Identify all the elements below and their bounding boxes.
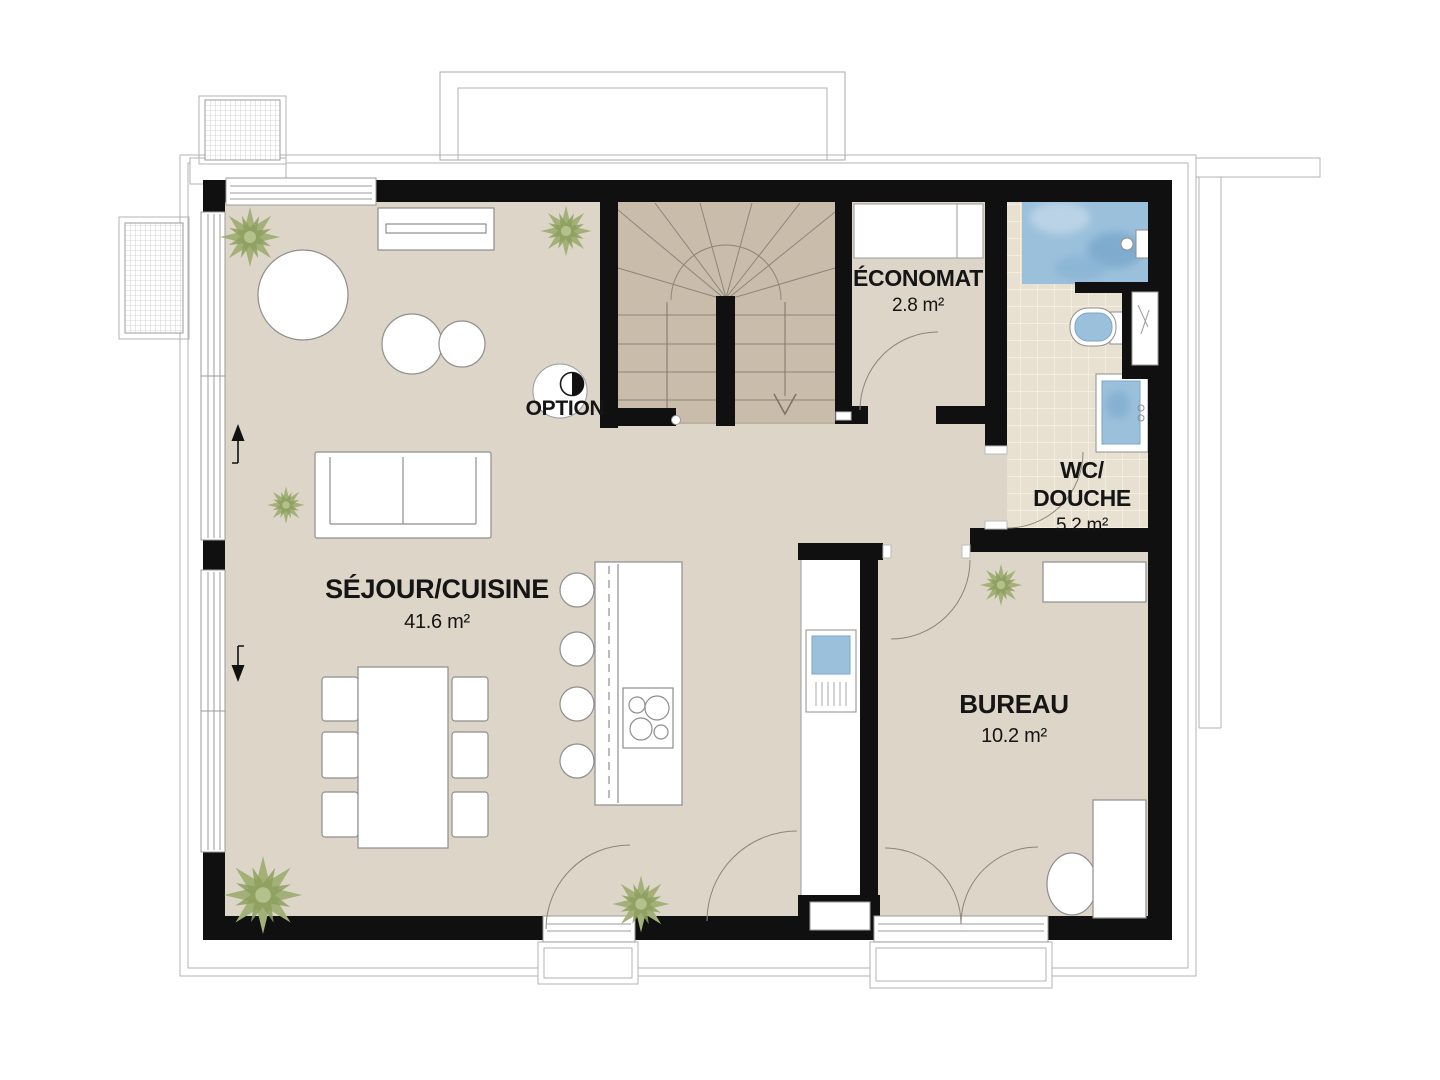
sideboard xyxy=(378,208,494,250)
sofa xyxy=(315,452,491,538)
shaft-bottom-box xyxy=(810,902,870,930)
room-area: 41.6 m² xyxy=(287,611,587,634)
plant-icon xyxy=(612,875,669,932)
wall-bottom xyxy=(203,916,547,940)
room-area: 2.8 m² xyxy=(818,295,1018,317)
bath-niche xyxy=(1132,292,1158,365)
toilet xyxy=(1070,308,1125,346)
plant-icon xyxy=(267,486,304,523)
room-area: 10.2 m² xyxy=(914,725,1114,748)
wall-hall-office xyxy=(798,543,883,560)
office-chair xyxy=(1047,853,1097,915)
stair-spine-wall xyxy=(716,296,735,426)
grille-top-icon xyxy=(205,100,280,160)
plant-icon xyxy=(220,207,280,267)
bar-stool xyxy=(560,632,594,666)
room-area: 5.2 m² xyxy=(1007,515,1157,537)
wall-storage-bath xyxy=(985,202,1007,454)
stair-walkline-start xyxy=(672,416,681,425)
option-label: OPTION xyxy=(505,397,625,421)
room-label-office: BUREAU 10.2 m² xyxy=(914,690,1114,748)
dining-table xyxy=(358,667,448,848)
pouf-small xyxy=(439,321,485,367)
plant-icon xyxy=(540,205,591,256)
wall-stairs-left xyxy=(600,202,618,428)
shaft-floor xyxy=(801,560,860,895)
office-desk xyxy=(1093,800,1146,918)
room-label-bathroom: WC/ DOUCHE 5.2 m² xyxy=(1007,457,1157,537)
floorplan-canvas: SÉJOUR/CUISINE 41.6 m² ÉCONOMAT 2.8 m² W… xyxy=(0,0,1440,1080)
window-top xyxy=(226,178,376,205)
cooktop-icon xyxy=(623,688,673,748)
room-name: ÉCONOMAT xyxy=(818,265,1018,291)
wall-shaft-right xyxy=(860,560,878,918)
storage-room xyxy=(854,204,983,258)
balcony-outline xyxy=(440,72,845,160)
round-table xyxy=(258,250,348,340)
room-label-living: SÉJOUR/CUISINE 41.6 m² xyxy=(287,574,587,634)
bar-stool xyxy=(560,744,594,778)
office-shelf xyxy=(1043,562,1146,602)
room-name: BUREAU xyxy=(914,690,1114,720)
bar-stool xyxy=(560,687,594,721)
plant-icon xyxy=(224,856,302,934)
kitchen-island xyxy=(595,562,682,805)
room-name: WC/ xyxy=(1007,457,1157,485)
shower-head-icon xyxy=(1121,238,1133,250)
pouf xyxy=(382,314,442,374)
bathroom-sink xyxy=(1096,374,1148,452)
dining-table-set xyxy=(322,667,488,848)
grille-left-icon xyxy=(125,223,183,333)
wall-shower-partition xyxy=(1075,282,1148,293)
room-label-storage: ÉCONOMAT 2.8 m² xyxy=(818,265,1018,317)
floorplan-svg xyxy=(0,0,1440,1080)
shower xyxy=(1022,202,1150,284)
shower-column-icon xyxy=(1136,230,1150,258)
window-terrace-door xyxy=(543,916,635,942)
room-name: SÉJOUR/CUISINE xyxy=(287,574,587,605)
room-name: DOUCHE xyxy=(1007,485,1157,513)
plant-icon xyxy=(980,564,1022,606)
